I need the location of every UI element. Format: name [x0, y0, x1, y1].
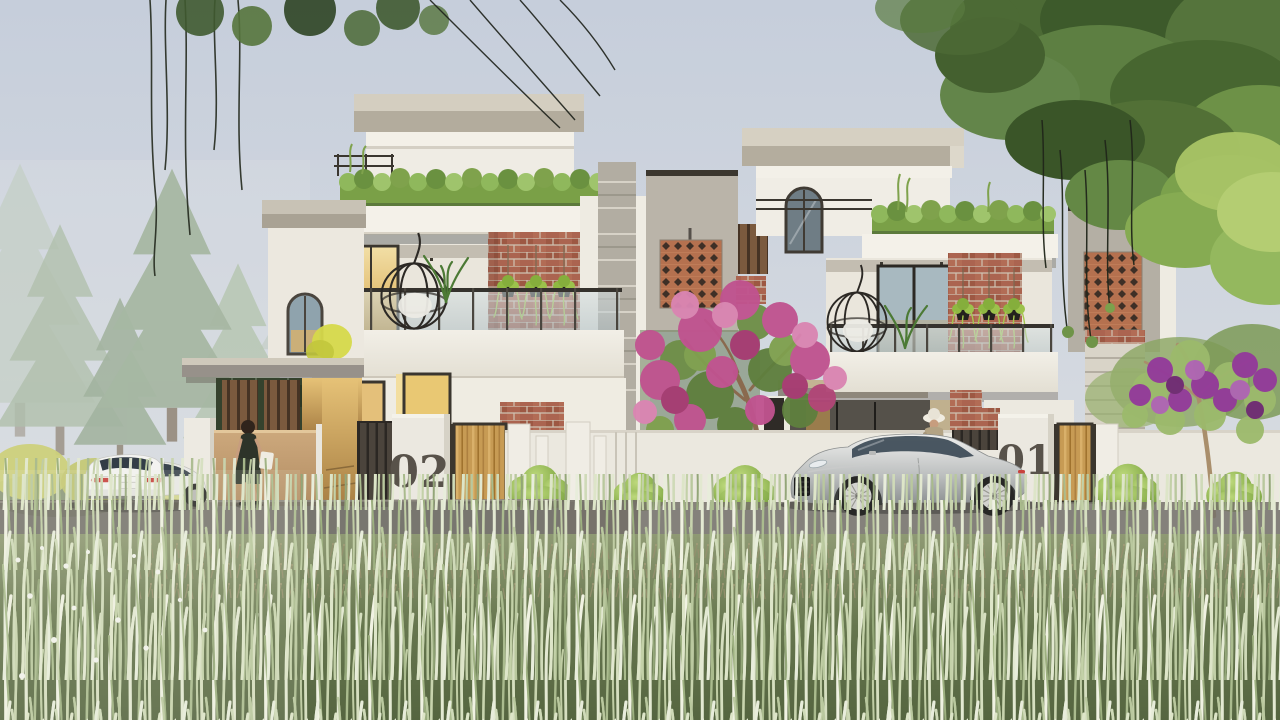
sports-car-tail-light	[1018, 470, 1025, 473]
architectural-render: 02 01	[0, 0, 1280, 720]
house-02-parapet	[366, 132, 574, 146]
house-02-glass-railing	[334, 288, 622, 332]
house-01-roof-slab	[742, 128, 964, 168]
house-02-left-wing	[262, 200, 366, 364]
side-mirror	[869, 451, 876, 455]
house-01-balcony-slab	[826, 352, 1058, 402]
render-canvas: 02 01	[0, 0, 1280, 720]
woman-head	[241, 420, 255, 434]
foreground-grass	[0, 458, 1280, 720]
house-01-parapet	[756, 166, 952, 178]
house-02-roof-slab	[354, 94, 584, 132]
house-01-arched-window	[786, 188, 822, 252]
